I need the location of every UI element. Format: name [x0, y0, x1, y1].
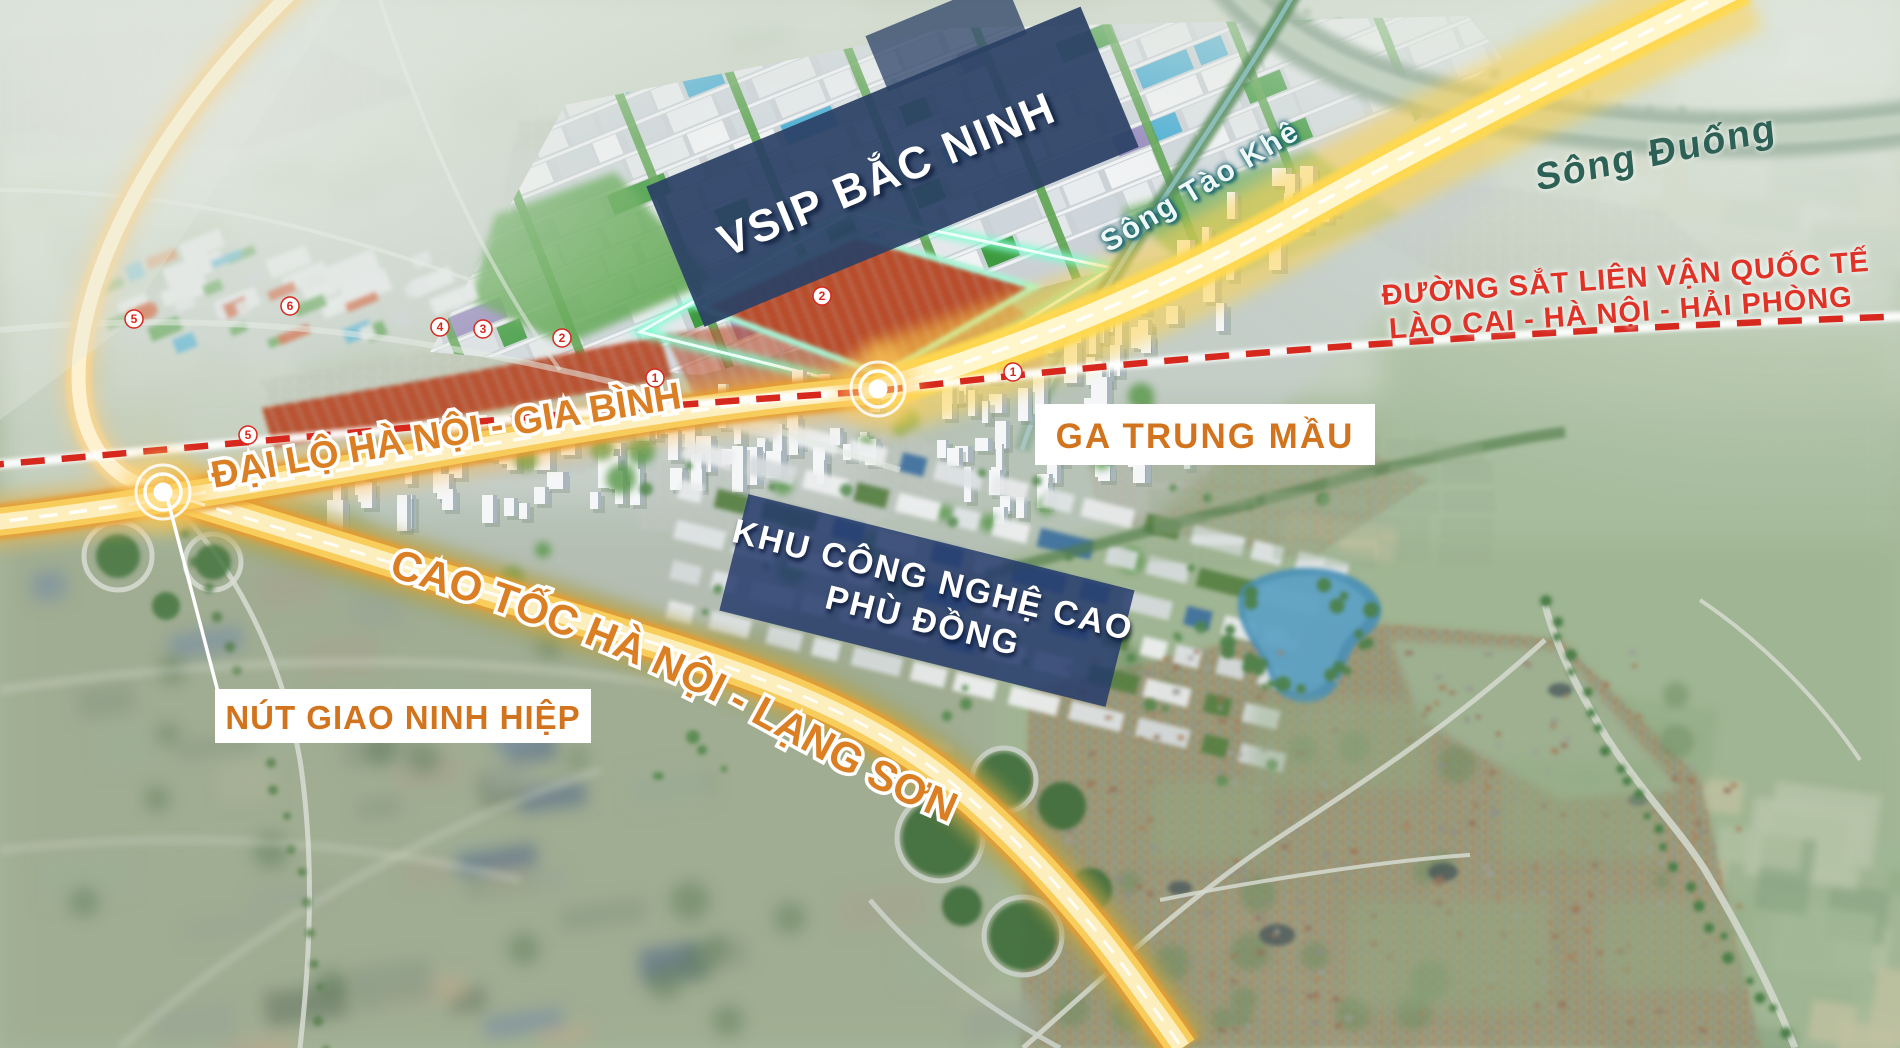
svg-text:5: 5	[131, 312, 138, 326]
svg-text:3: 3	[480, 322, 487, 336]
svg-text:2: 2	[819, 289, 826, 303]
svg-text:GA TRUNG MẦU: GA TRUNG MẦU	[1056, 416, 1355, 456]
svg-text:4: 4	[437, 320, 444, 334]
svg-text:2: 2	[559, 331, 566, 345]
svg-text:5: 5	[245, 428, 252, 442]
svg-text:6: 6	[287, 299, 294, 313]
svg-text:1: 1	[652, 371, 659, 385]
svg-text:1: 1	[1010, 365, 1017, 379]
svg-text:NÚT GIAO NINH HIỆP: NÚT GIAO NINH HIỆP	[225, 699, 580, 736]
